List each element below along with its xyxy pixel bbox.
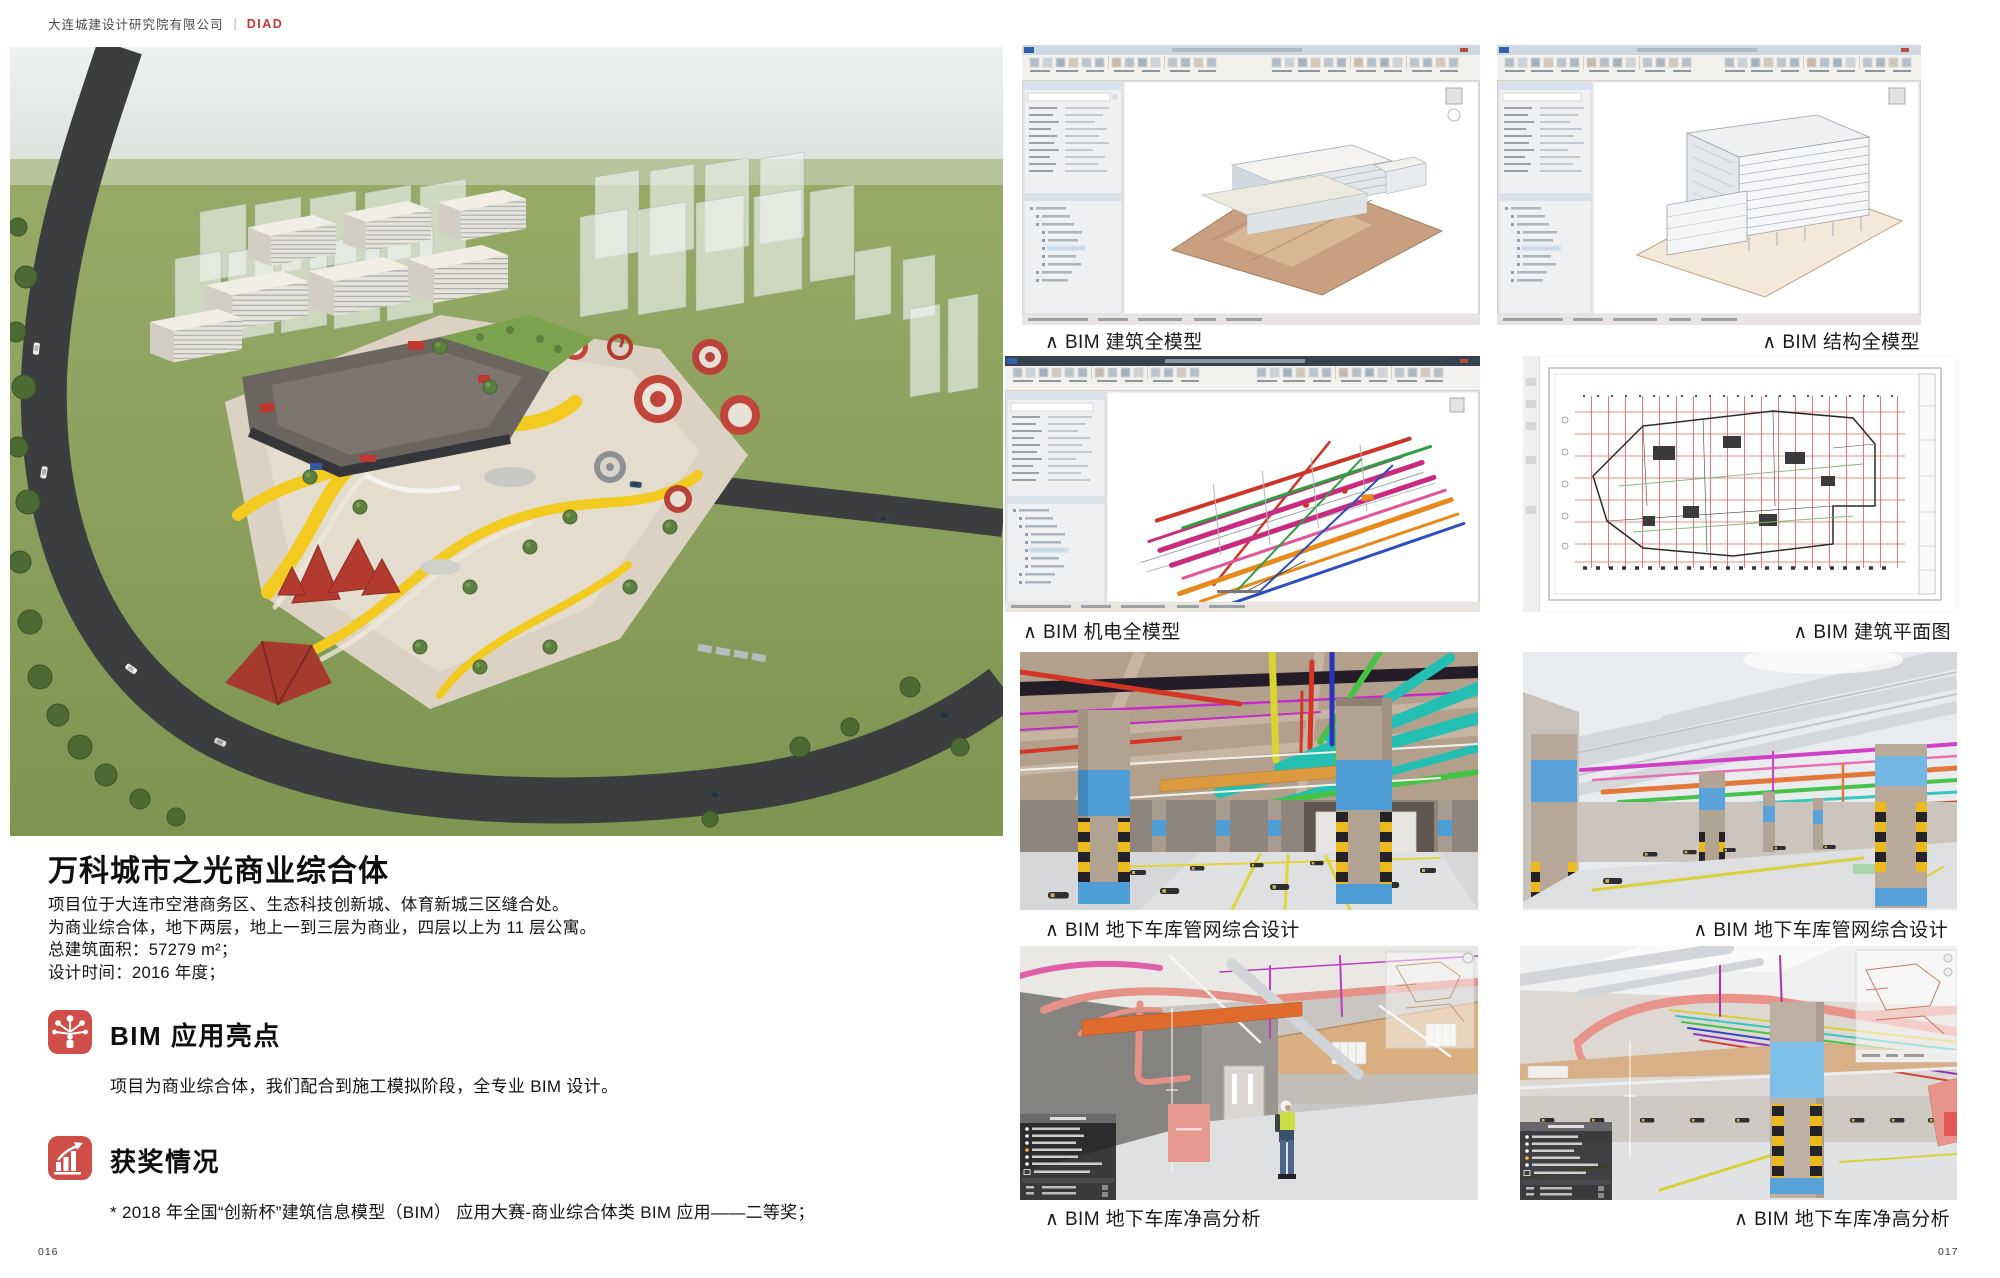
figure-bim-structure-model [1497, 45, 1921, 325]
bim-floor-plan-image [1523, 356, 1957, 612]
garage-clearance-left-image [1020, 946, 1478, 1200]
bim-network-icon [48, 1010, 92, 1054]
bim-mep-model-image [1005, 356, 1480, 612]
company-name: 大连城建设计研究院有限公司 [48, 14, 224, 33]
garage-piping-right-image [1523, 652, 1957, 910]
page-number-right: 017 [1938, 1246, 1959, 1258]
page-number-left: 016 [38, 1246, 59, 1258]
caption-bim-floor-plan: ∧ BIM 建筑平面图 [1523, 617, 1951, 644]
caption-bim-structure-model: ∧ BIM 结构全模型 [1497, 327, 1920, 354]
caption-garage-piping-right: ∧ BIM 地下车库管网综合设计 [1523, 915, 1948, 942]
description-line: 设计时间：2016 年度； [48, 962, 596, 985]
bim-structure-model-image [1497, 45, 1921, 325]
description-line: 项目位于大连市空港商务区、生态科技创新城、体育新城三区缝合处。 [48, 894, 596, 917]
description-line: 为商业综合体，地下两层，地上一到三层为商业，四层以上为 11 层公寓。 [48, 917, 596, 940]
caption-garage-clearance-left: ∧ BIM 地下车库净高分析 [1045, 1204, 1261, 1231]
figure-bim-architecture-model [1022, 45, 1480, 325]
caption-garage-clearance-right: ∧ BIM 地下车库净高分析 [1520, 1204, 1950, 1231]
brand-logo-text: DIAD [247, 17, 284, 31]
caption-bim-architecture-model: ∧ BIM 建筑全模型 [1045, 327, 1203, 354]
section-title-awards: 获奖情况 [110, 1142, 220, 1179]
figure-bim-floor-plan [1523, 356, 1957, 612]
garage-clearance-right-image [1520, 946, 1957, 1200]
figure-garage-piping-right [1523, 652, 1957, 910]
bim-architecture-model-image [1022, 45, 1480, 325]
figure-bim-mep-model [1005, 356, 1480, 612]
project-title: 万科城市之光商业综合体 [48, 846, 389, 890]
section-title-bim-highlights: BIM 应用亮点 [110, 1016, 281, 1053]
figure-aerial-rendering [10, 47, 1003, 836]
aerial-rendering-image [10, 47, 1003, 836]
brochure-spread: 大连城建设计研究院有限公司 | DIAD [0, 0, 2000, 1278]
section-body-awards: * 2018 年全国“创新杯”建筑信息模型（BIM） 应用大赛-商业综合体类 B… [110, 1198, 815, 1223]
header-divider: | [234, 17, 237, 31]
project-description: 项目位于大连市空港商务区、生态科技创新城、体育新城三区缝合处。 为商业综合体，地… [48, 894, 596, 984]
section-body-bim-highlights: 项目为商业综合体，我们配合到施工模拟阶段，全专业 BIM 设计。 [110, 1072, 618, 1097]
description-line: 总建筑面积：57279 m²； [48, 939, 596, 962]
figure-garage-clearance-left [1020, 946, 1478, 1200]
garage-piping-left-image [1020, 652, 1478, 910]
caption-garage-piping-left: ∧ BIM 地下车库管网综合设计 [1045, 915, 1300, 942]
award-trend-icon [48, 1136, 92, 1180]
page-header: 大连城建设计研究院有限公司 | DIAD [48, 14, 283, 33]
figure-garage-clearance-right [1520, 946, 1957, 1200]
caption-bim-mep-model: ∧ BIM 机电全模型 [1023, 617, 1181, 644]
figure-garage-piping-left [1020, 652, 1478, 910]
